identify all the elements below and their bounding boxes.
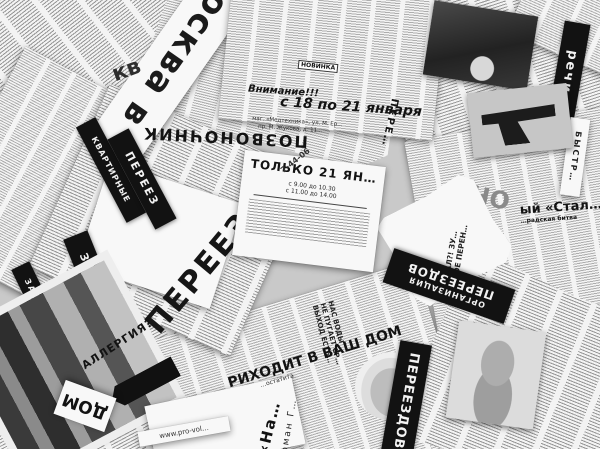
portrait-photo	[446, 320, 547, 429]
pistol-photo	[467, 83, 573, 158]
dark-photo	[423, 0, 538, 91]
ad-clipping-tolko: ТОЛЬКО 21 ЯН… с 9.00 до 10.30 с 11.00 до…	[232, 150, 386, 273]
pistol-silhouette	[480, 98, 558, 148]
dom-text: ДОМ	[60, 389, 111, 424]
newspaper-collage-photo: осква в кв НОВИНКА Внимание!!! с 18 по 2…	[0, 0, 600, 449]
